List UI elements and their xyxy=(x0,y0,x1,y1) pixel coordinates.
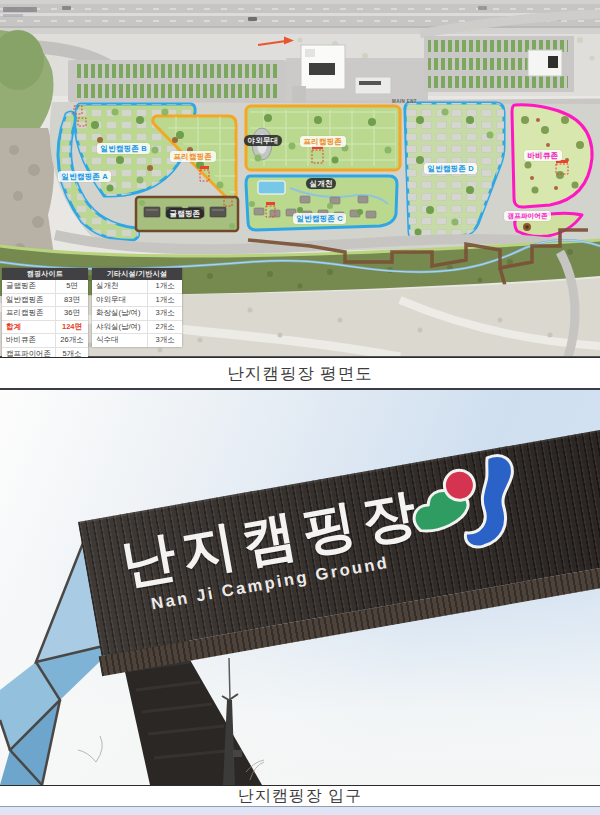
zone-label-stream: 실개천 xyxy=(306,178,336,189)
entrance-photo-caption: 난지캠핑장 입구 xyxy=(0,786,600,806)
zone-label-glamping: 글램핑존 xyxy=(166,208,204,219)
facility-table: 기타시설/기반시설 실개천1개소 야외무대1개소 화장실(남/여)3개소 샤워실… xyxy=(92,268,182,347)
table-row: 실개천1개소 xyxy=(92,280,182,294)
floor-plan-caption: 난지캠핑장 평면도 xyxy=(0,358,600,390)
zone-label-free-center: 프리캠핑존 xyxy=(300,136,346,147)
zone-label-bbq: 바비큐존 xyxy=(524,150,562,161)
table-row: 캠프파이어존5개소 xyxy=(2,348,88,359)
document-page: 일반캠핑존 B 일반캠핑존 A 프리캠핑존 야외무대 프리캠핑존 실개천 일반캠… xyxy=(0,0,600,815)
table-row-total: 합계124면 xyxy=(2,321,88,335)
facility-table-title: 기타시설/기반시설 xyxy=(92,268,182,280)
table-row: 프리캠핑존36면 xyxy=(2,307,88,321)
table-row: 화장실(남/여)3개소 xyxy=(92,307,182,321)
zone-label-campfire: 캠프파이어존 xyxy=(504,211,551,221)
table-row: 야외무대1개소 xyxy=(92,294,182,308)
table-row: 일반캠핑존83면 xyxy=(2,294,88,308)
floor-plan-figure: 일반캠핑존 B 일반캠핑존 A 프리캠핑존 야외무대 프리캠핑존 실개천 일반캠… xyxy=(0,0,600,358)
camping-site-table-title: 캠핑사이트 xyxy=(2,268,88,280)
zone-label-general-d: 일반캠핑존 D xyxy=(424,163,477,174)
seoul-logo-icon xyxy=(392,445,560,587)
zone-label-free-left: 프리캠핑존 xyxy=(170,151,216,162)
bottom-strip xyxy=(0,806,600,815)
main-entrance-label: MAIN ENT xyxy=(392,99,417,104)
zone-label-general-b: 일반캠핑존 B xyxy=(97,143,150,154)
table-row: 바비큐존26개소 xyxy=(2,334,88,348)
entrance-photo-figure: 난지캠핑장 Nan Ji Camping Ground xyxy=(0,390,600,786)
street-lamp xyxy=(229,658,230,700)
zone-label-general-c: 일반캠핑존 C xyxy=(293,213,346,224)
zone-label-stage: 야외무대 xyxy=(244,135,282,146)
table-row: 샤워실(남/여)2개소 xyxy=(92,321,182,335)
table-row: 글램핑존5면 xyxy=(2,280,88,294)
table-row: 식수대3개소 xyxy=(92,334,182,347)
zone-label-general-a: 일반캠핑존 A xyxy=(58,171,111,182)
camping-site-table: 캠핑사이트 글램핑존5면 일반캠핑존83면 프리캠핑존36면 합계124면 바비… xyxy=(2,268,88,358)
